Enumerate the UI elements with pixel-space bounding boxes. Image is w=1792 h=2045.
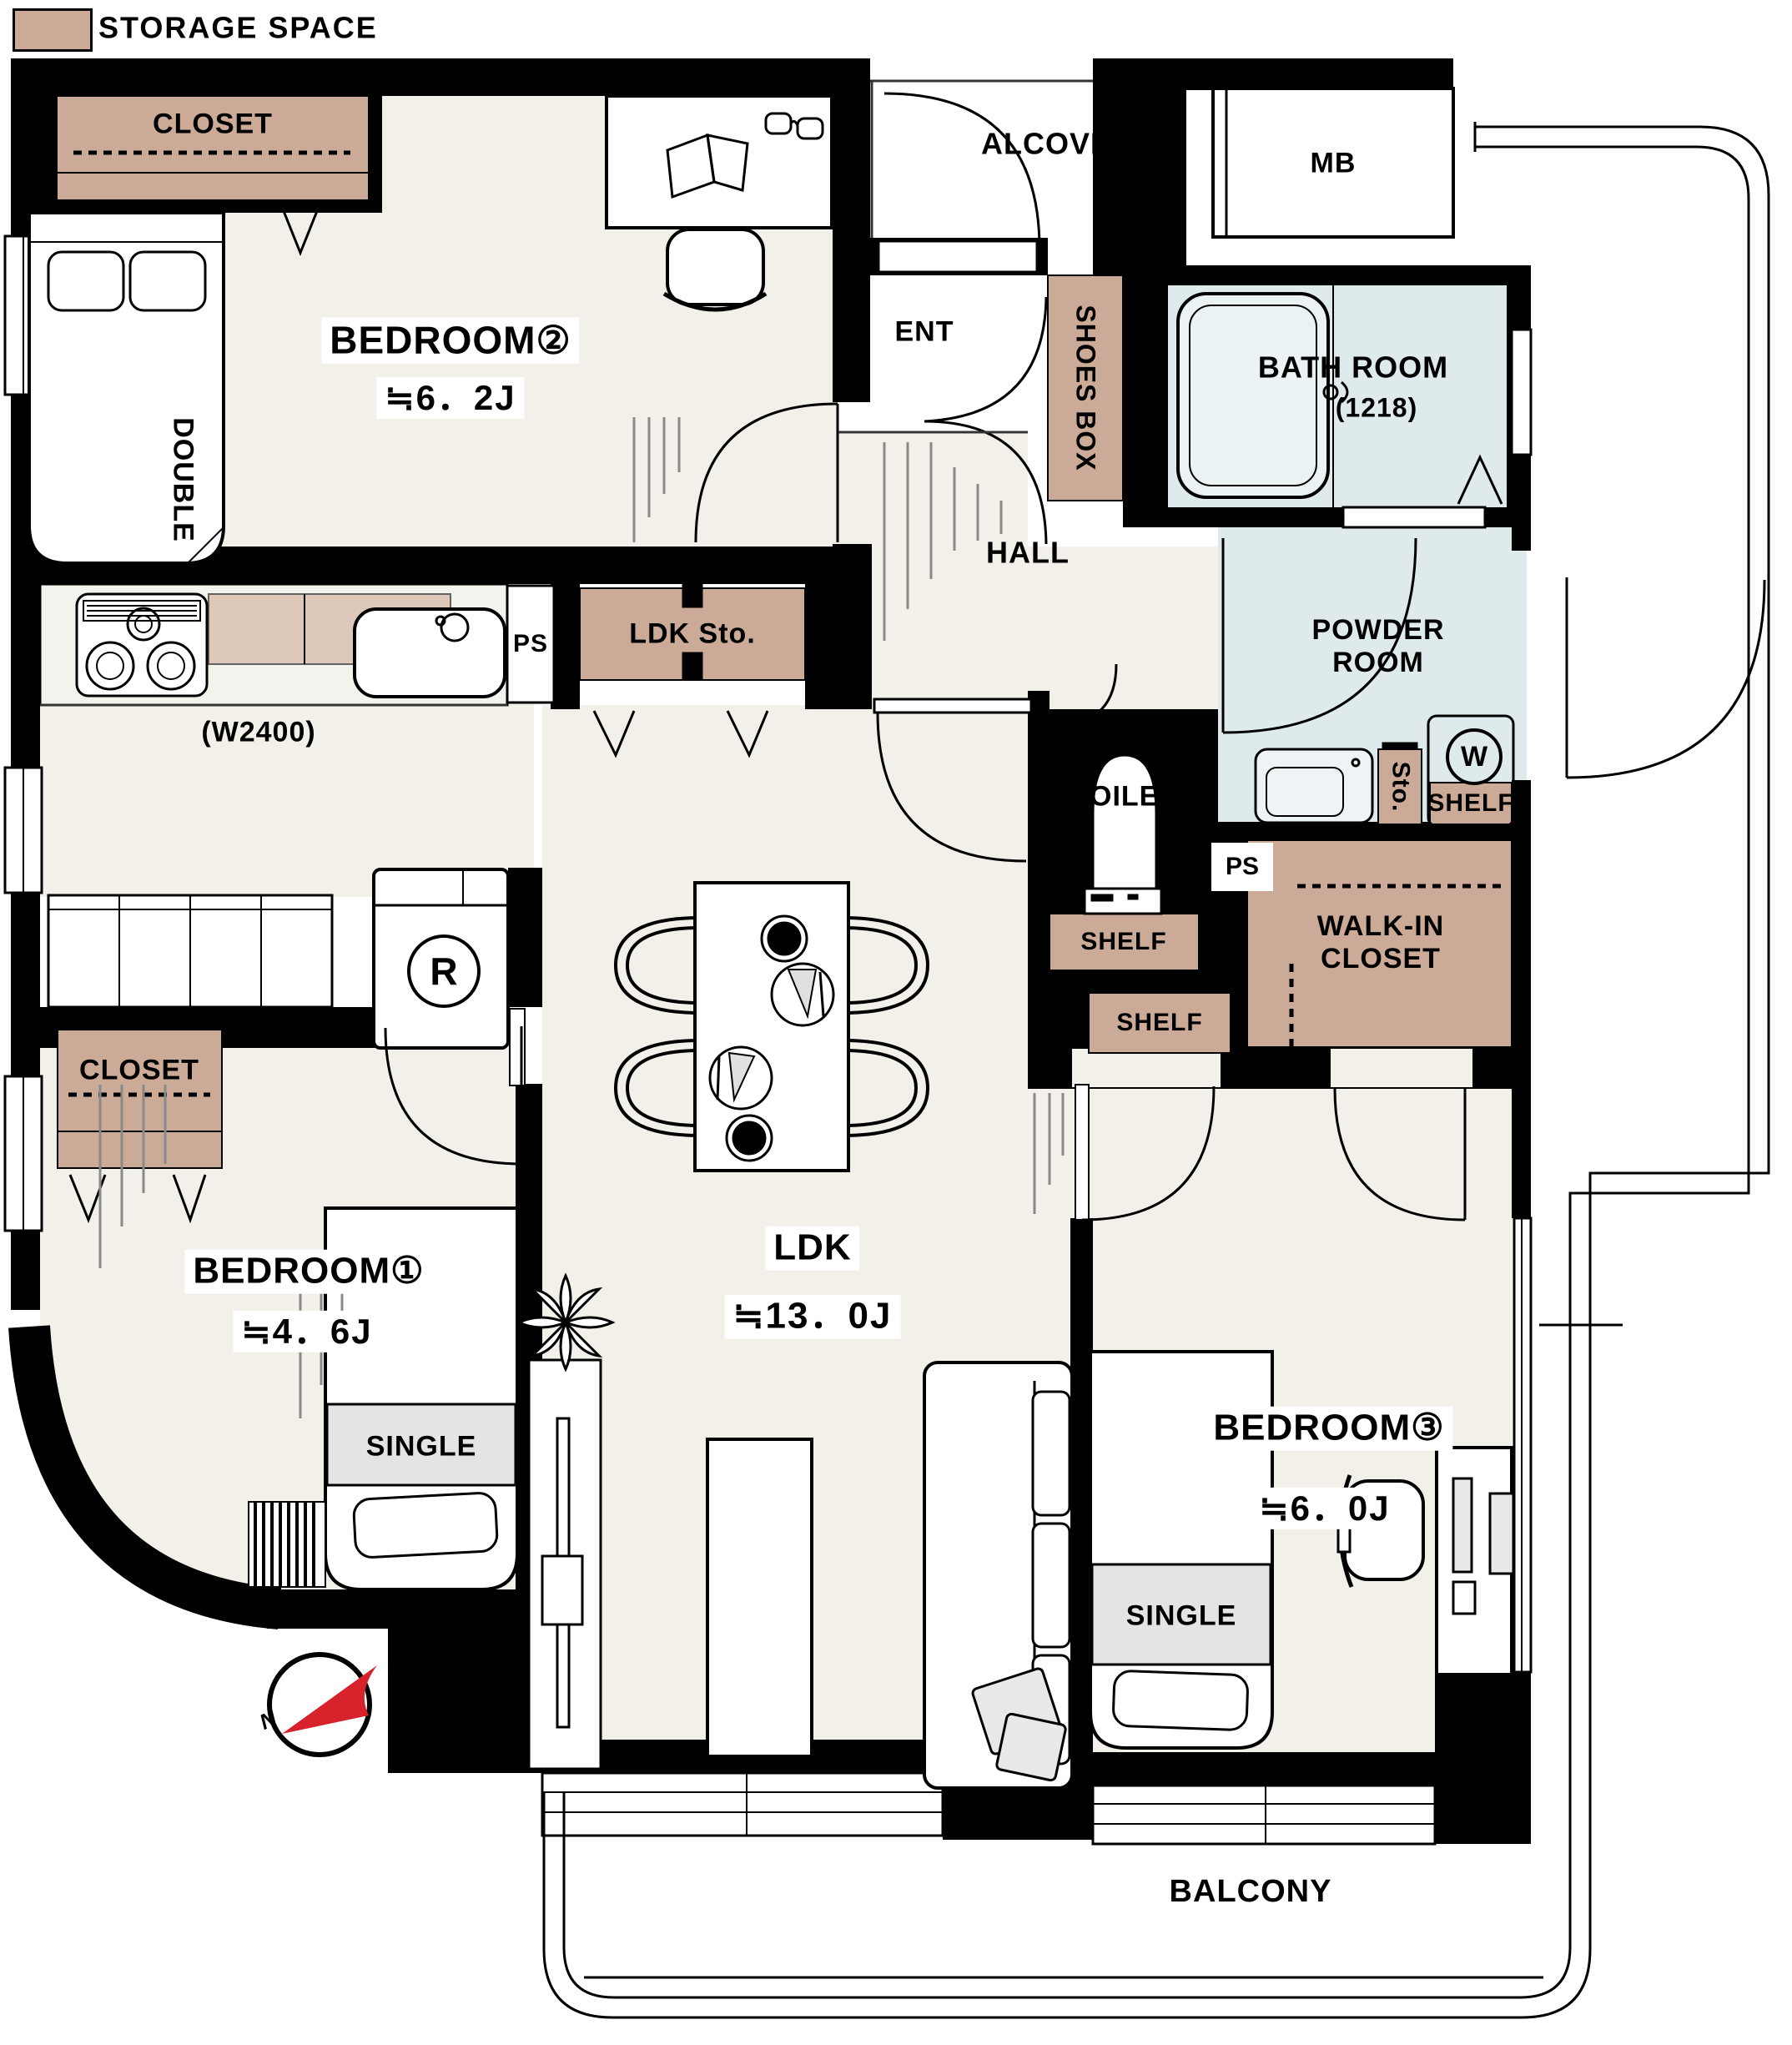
chair [667, 229, 763, 305]
single-bed3-label: SINGLE [1126, 1599, 1237, 1632]
toilet-label: TOILET [1072, 780, 1177, 813]
single-bed1-label: SINGLE [366, 1430, 477, 1463]
vent-grate [249, 1502, 325, 1587]
washing-machine-mark: W [1446, 728, 1503, 785]
balcony-label: BALCONY [1170, 1874, 1332, 1911]
bathroom-name: BATH ROOM [1258, 350, 1448, 384]
bedroom2-name: BEDROOM② [321, 318, 579, 364]
toilet-icon [1093, 755, 1156, 889]
closet-bedroom1-label: CLOSET [79, 1054, 199, 1086]
sink-icon [355, 609, 505, 697]
shelf-powder-label: SHELF [1427, 789, 1513, 819]
bathtub-icon [1178, 294, 1328, 497]
plant-icon [519, 1276, 612, 1369]
cup-icon [732, 1121, 766, 1155]
bedroom3-name: BEDROOM③ [1205, 1407, 1452, 1451]
ent-label: ENT [895, 315, 954, 348]
alcove-label: ALCOVE [981, 126, 1111, 160]
double-bed-label: DOUBLE [166, 417, 199, 542]
ps-kitchen-label: PS [513, 630, 548, 659]
closet-bedroom1-area [58, 1030, 222, 1168]
bathroom-size: (1218) [1336, 393, 1418, 424]
ldk-name: LDK [765, 1226, 859, 1271]
legend-label: STORAGE SPACE [98, 10, 378, 44]
compass [269, 1655, 377, 1755]
sto-label: Sto. [1386, 762, 1415, 813]
floor-plan-drawing [0, 0, 1792, 2045]
bedroom1-name: BEDROOM① [184, 1250, 432, 1294]
kitchen [40, 584, 554, 705]
floor-plan: STORAGE SPACE CLOSET BEDROOM② ≒6．2J DOUB… [0, 0, 1792, 2045]
bedroom1-size: ≒4．6J [233, 1311, 380, 1352]
closet-bedroom2-label: CLOSET [153, 108, 273, 140]
cup-icon [768, 922, 801, 955]
ps-hall-box: PS [1211, 843, 1273, 891]
pillow-icon [353, 1493, 497, 1559]
shelf-hall-label: SHELF [1116, 1009, 1202, 1038]
kitchen-width-label: (W2400) [201, 716, 315, 748]
bedroom3-size: ≒6．0J [1251, 1488, 1398, 1529]
pillow-icon [1113, 1670, 1248, 1730]
hall-label: HALL [986, 535, 1070, 569]
dining-table [695, 883, 848, 1171]
door-gap [1072, 1049, 1221, 1087]
legend-swatch [13, 8, 93, 52]
coffee-table [707, 1439, 812, 1756]
sofa [924, 1362, 1072, 1788]
ldk-storage-label: LDK Sto. [629, 617, 756, 650]
toilet-fixture [1085, 755, 1161, 914]
mb-label: MB [1311, 147, 1357, 179]
walk-in-closet-label: WALK-IN CLOSET [1268, 910, 1493, 975]
powder-room-label: POWDER ROOM [1291, 614, 1466, 679]
pillow-icon [48, 252, 123, 310]
bedroom2-size: ≒6．2J [376, 377, 524, 419]
monitor-icon [1453, 1478, 1472, 1572]
door-gap [1331, 1049, 1472, 1087]
pillow-icon [130, 252, 205, 310]
throw-pillow [996, 1713, 1067, 1781]
ldk-size: ≒13．0J [725, 1295, 901, 1339]
refrigerator-mark: R [407, 934, 481, 1008]
shoes-box-label: SHOES BOX [1070, 305, 1101, 471]
stove-icon [77, 594, 207, 696]
shelf-toilet-label: SHELF [1080, 928, 1166, 957]
